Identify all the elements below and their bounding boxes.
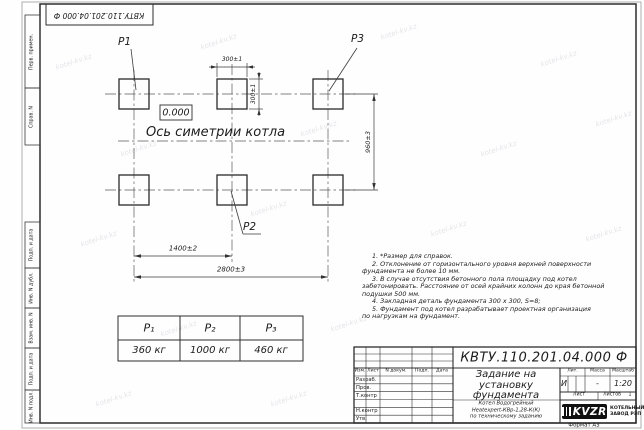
prop-label-mass: Масса: [590, 370, 605, 375]
format-label: Формат А3: [568, 423, 599, 429]
load-table-header-p2: P₂: [204, 323, 215, 334]
axis-lines: [105, 64, 358, 282]
frame-label-podp-data-2: Подп. и дата: [30, 353, 35, 386]
prop-value-lit: И: [561, 380, 567, 388]
pad-label-p2: P2: [243, 222, 256, 233]
row-label-utv: Утв.: [356, 417, 367, 422]
dim-300-top: 300±1: [222, 57, 242, 63]
load-table-value-p2: 1000 кг: [190, 346, 230, 356]
row-label-prov: Пров.: [356, 386, 371, 391]
frame-label-inv-podl: Инв. N подл.: [30, 391, 35, 423]
row-label-nkontr: Н.контр: [356, 409, 378, 414]
dim-2800: 2800±3: [217, 267, 245, 274]
technical-notes: 1. *Размер для справок. 2. Отклонение от…: [362, 253, 640, 321]
drawing-sheet: kotel-kv.kz kotel-kv.kz kotel-kv.kz kote…: [0, 0, 644, 430]
col-header-ndoc: N докум.: [385, 370, 406, 375]
subtitle-line2: Heatexpert-КВр-1,28-К(К): [472, 408, 540, 413]
pad-label-p1: P1: [118, 37, 131, 48]
title-block-doc-number: КВТУ.110.201.04.000 Ф: [460, 351, 627, 364]
subtitle-line1: Котел Водогрейный: [479, 401, 534, 406]
frame-label-podp-data-1: Подп. и дата: [30, 229, 35, 262]
company-name: КОТЕЛЬНЫЙ ЗАВОД РЭП: [610, 406, 644, 418]
row-label-razrab: Разраб.: [356, 378, 376, 383]
frame-label-vzam-inv: Взам. инв. N: [30, 312, 35, 343]
dim-300-side: 300±1: [251, 84, 257, 104]
col-header-data: Дата: [436, 370, 448, 375]
drawing-linework: [0, 0, 644, 430]
symmetry-axis-caption: Ось симетрии котла: [146, 126, 285, 139]
subtitle-line3: по техническому заданию: [470, 414, 542, 419]
pad-label-p3: P3: [351, 34, 364, 45]
logo-bars-icon: [562, 407, 570, 416]
dim-1400: 1400±2: [169, 246, 197, 253]
frame-label-perv-primen: Перв. примен.: [30, 33, 35, 69]
drawing-title-line2: установку: [479, 381, 533, 391]
drawing-title-line1: Задание на: [476, 370, 537, 380]
company-line1: КОТЕЛЬНЫЙ: [610, 406, 644, 412]
col-header-izm: Изм.: [355, 370, 366, 375]
prop-label-sheets: Листов: [603, 394, 621, 399]
load-table-header-p3: P₃: [265, 323, 276, 334]
load-table-value-p1: 360 кг: [132, 346, 166, 356]
elevation-value: 0.000: [162, 108, 189, 118]
prop-label-sheet: Лист: [573, 394, 585, 399]
prop-label-lit: Лит.: [567, 370, 578, 375]
frame-label-inv-dubl: Инв. N дубл.: [30, 272, 35, 303]
note-line: по нагрузкам на фундамент.: [362, 313, 640, 321]
col-header-list: Лист: [367, 370, 379, 375]
logo-text: KVZR: [573, 406, 607, 418]
prop-label-scale: Масштаб: [612, 370, 634, 375]
top-stamp-doc-number: КВТУ.110.201.04.000 Ф: [54, 11, 145, 19]
kvzr-logo: KVZR: [562, 404, 607, 419]
col-header-podp: Подп.: [415, 370, 429, 375]
company-line2: ЗАВОД РЭП: [610, 412, 644, 418]
prop-value-sheets-count: 1: [628, 394, 631, 399]
prop-value-mass: -: [596, 380, 599, 388]
frame-label-sprav-n: Справ. N: [30, 106, 35, 128]
load-table-value-p3: 460 кг: [254, 346, 288, 356]
row-label-tkontr: Т.контр: [356, 394, 377, 399]
load-table-header-p1: P₁: [143, 323, 154, 334]
prop-value-scale: 1:20: [614, 380, 632, 388]
dim-960: 960±3: [365, 131, 372, 153]
foundation-pads: [119, 79, 343, 205]
